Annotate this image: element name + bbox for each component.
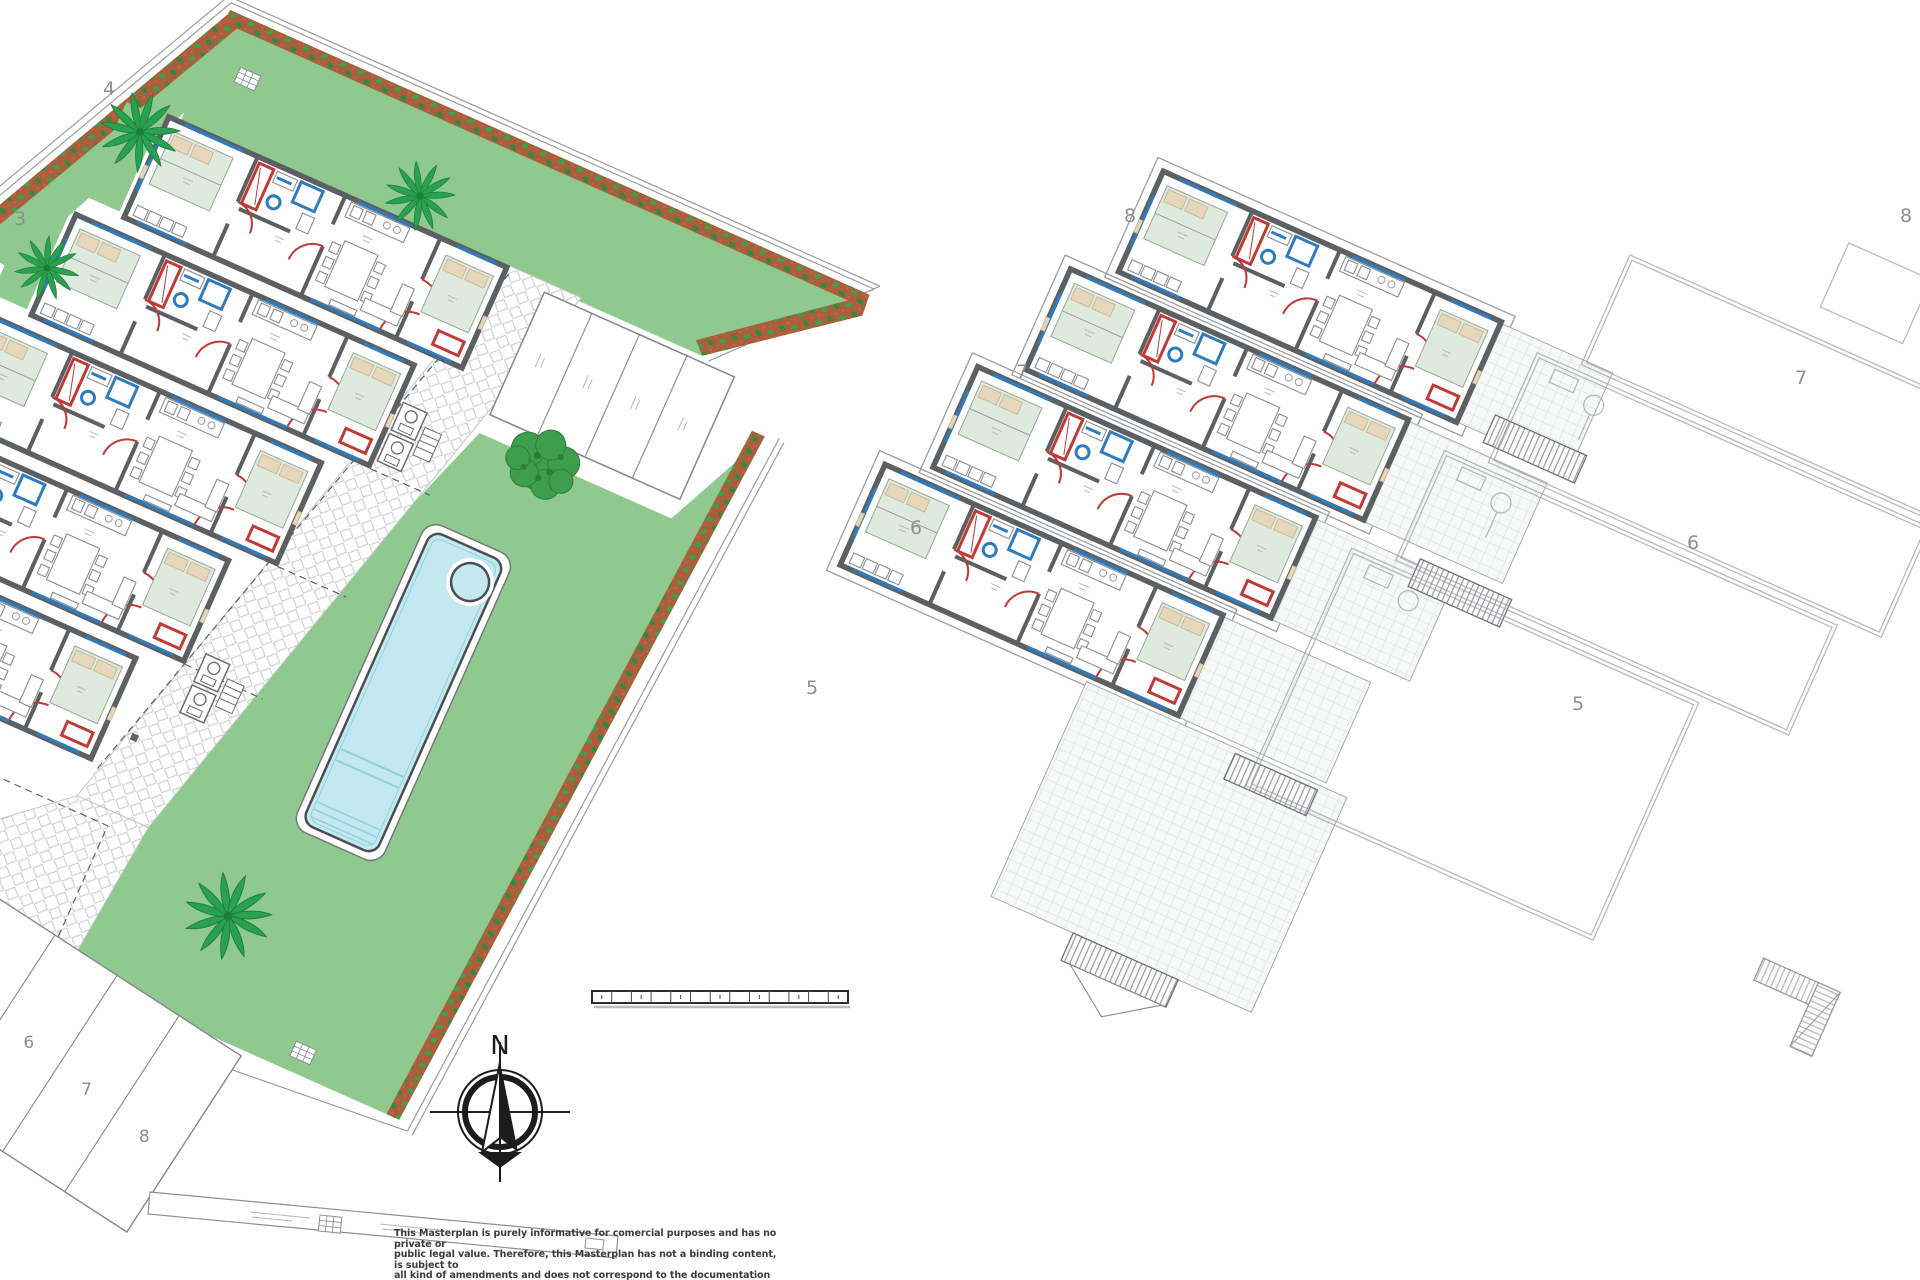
disclaimer-text: This Masterplan is purely informative fo… xyxy=(394,1229,786,1280)
unit-number-8: 8 xyxy=(1124,205,1136,227)
plot-number-4: 4 xyxy=(103,78,115,100)
disclaimer-line: public legal value. Therefore, this Mast… xyxy=(394,1250,786,1271)
scale-bar xyxy=(592,991,850,1007)
north-arrow-base xyxy=(478,1152,522,1168)
unit-number-5: 5 xyxy=(1572,693,1584,715)
parking-number-7: 7 xyxy=(81,1080,92,1100)
compass-rose: N xyxy=(430,1031,570,1182)
unit-number-6: 6 xyxy=(910,517,922,539)
disclaimer-line: This Masterplan is purely informative fo… xyxy=(394,1229,786,1250)
plot-number-3: 3 xyxy=(14,208,26,230)
drain-grate xyxy=(318,1215,342,1233)
unit-number-8: 8 xyxy=(1900,205,1912,227)
middle-building-complex xyxy=(706,103,1627,1105)
parking-number-6: 6 xyxy=(23,1033,34,1053)
unit-number-6: 6 xyxy=(1687,532,1699,554)
masterplan-drawing: 6 7 8 xyxy=(0,0,1920,1280)
roof-staircase xyxy=(1735,958,1840,1056)
unit-number-7: 7 xyxy=(1795,367,1807,389)
disclaimer-line: all kind of amendments and does not corr… xyxy=(394,1271,786,1280)
parking-number-8: 8 xyxy=(139,1127,150,1147)
unit-number-5: 5 xyxy=(806,677,818,699)
masterplan-canvas: 6 7 8 xyxy=(0,0,1920,1280)
unit-number-7: 7 xyxy=(1016,361,1028,383)
